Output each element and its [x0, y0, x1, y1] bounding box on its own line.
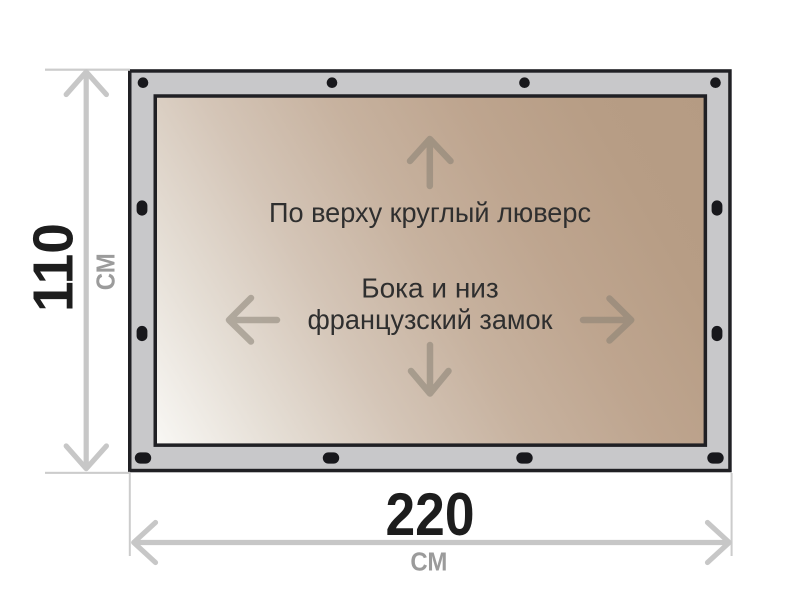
svg-text:СМ: СМ: [410, 547, 447, 577]
svg-text:СМ: СМ: [90, 253, 120, 290]
svg-text:Бока и низ: Бока и низ: [361, 273, 499, 304]
svg-text:110: 110: [22, 223, 86, 312]
svg-text:французский замок: французский замок: [308, 304, 554, 335]
svg-text:По верху круглый люверс: По верху круглый люверс: [269, 197, 591, 228]
svg-text:220: 220: [386, 481, 475, 548]
